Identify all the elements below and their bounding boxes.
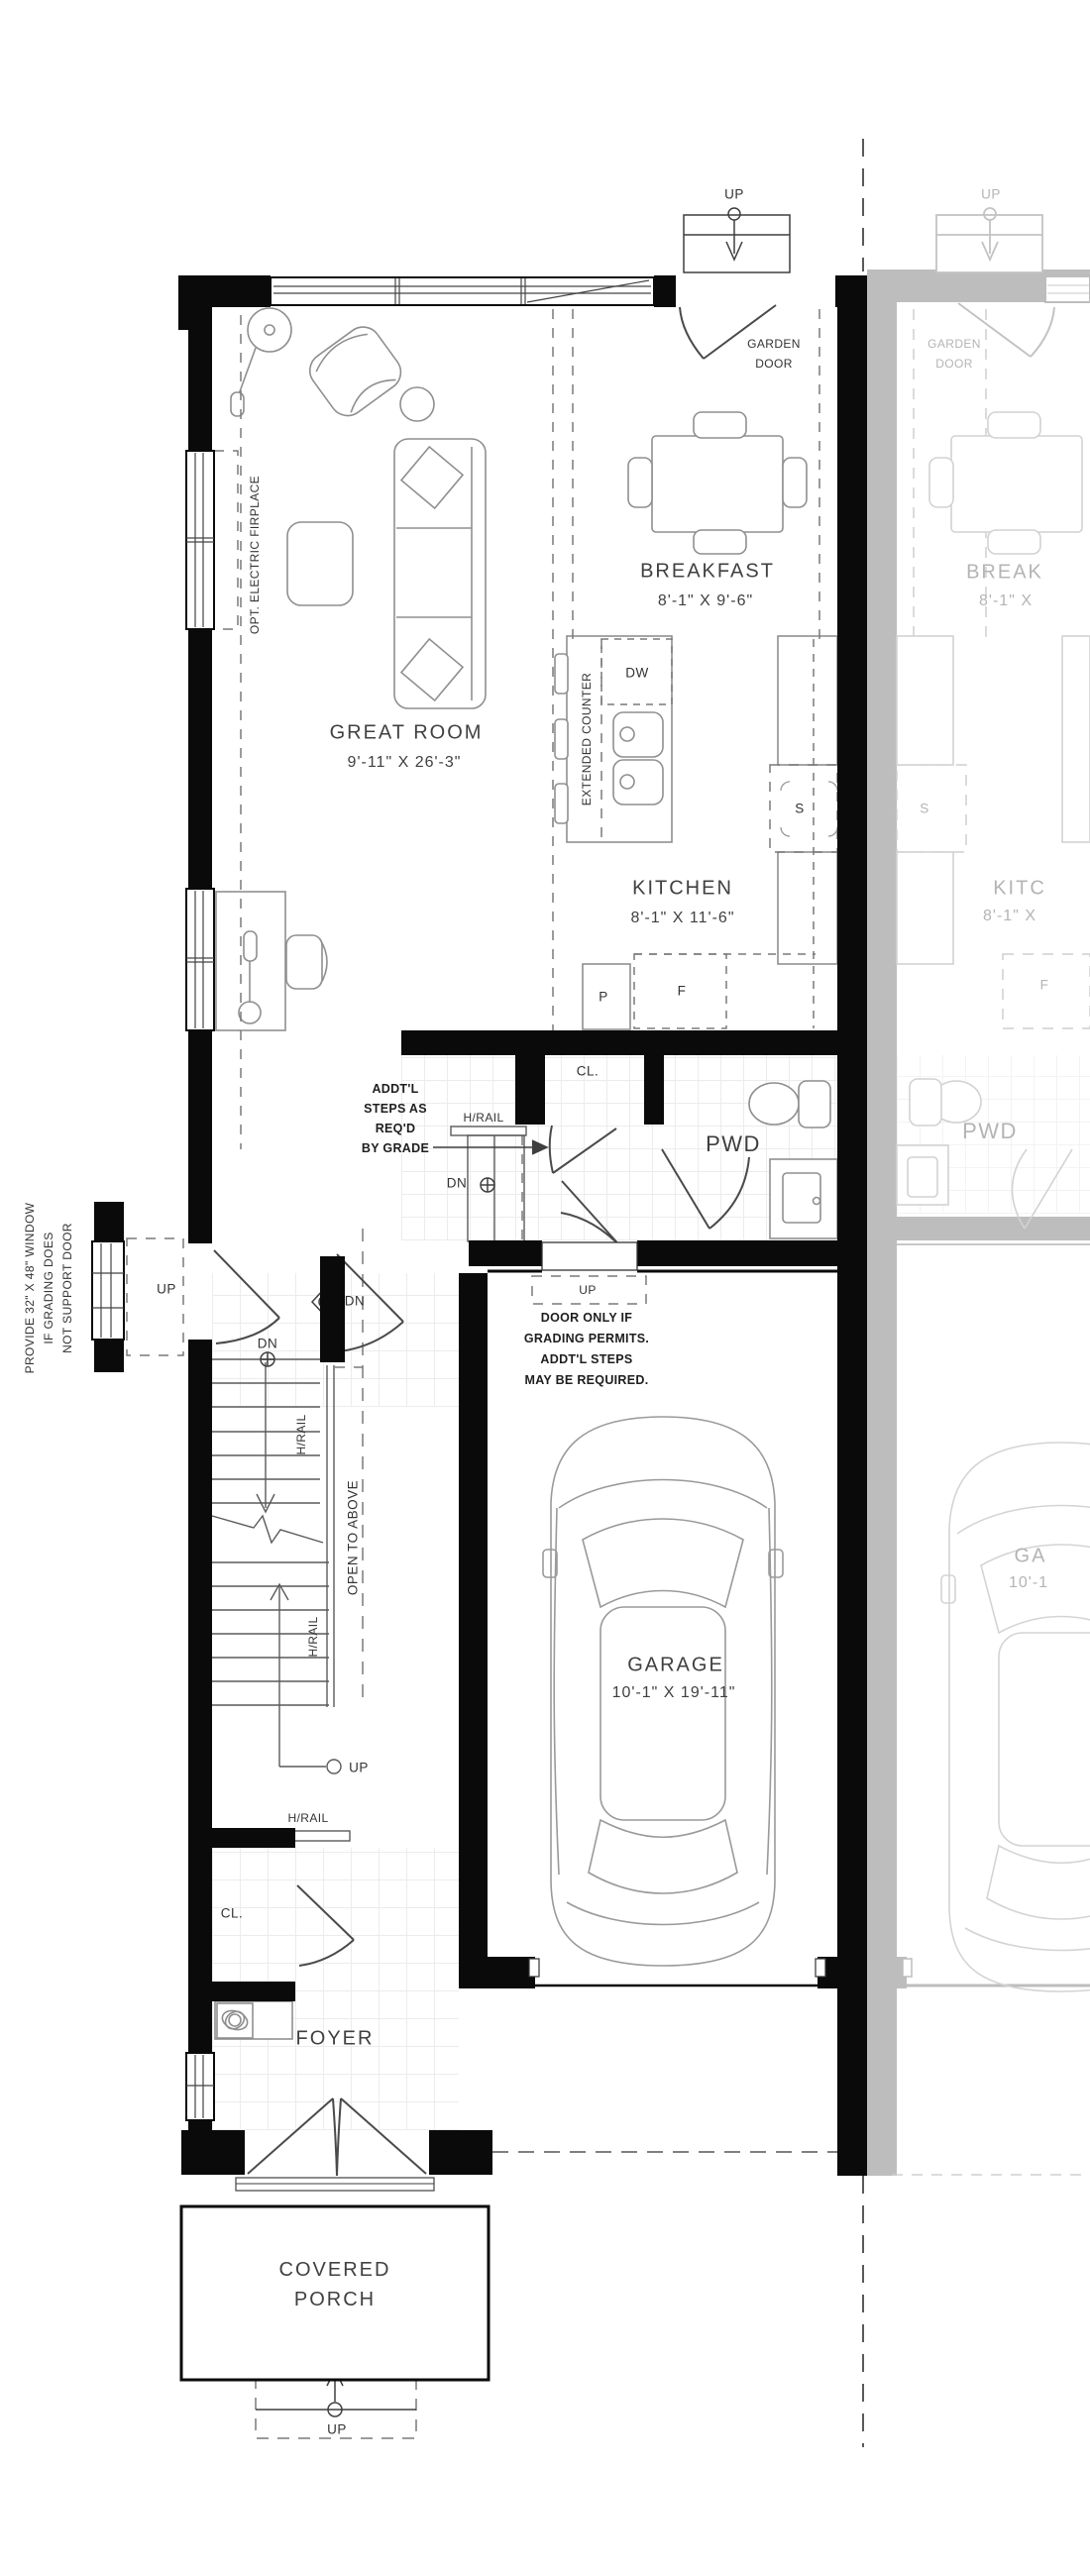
great-room-dims: 9'-11" X 26'-3" (348, 754, 462, 772)
optional-garage-door-opening (542, 1242, 637, 1270)
garage-dims: 10'-1" X 19'-11" (612, 1684, 736, 1702)
adjacent-powder-label: PWD (962, 1119, 1018, 1144)
adjacent-breakfast-label: BREAK (966, 562, 1043, 585)
adjacent-fridge-label: F (1040, 978, 1049, 993)
breakfast-label: BREAKFAST (640, 561, 775, 584)
door-grading-note-4: MAY BE REQUIRED. (525, 1373, 649, 1387)
adjacent-unit (867, 208, 1090, 2176)
window-grading-line1: PROVIDE 32" X 48" WINDOW (21, 1203, 40, 1374)
garden-door-label-1: GARDEN (747, 337, 801, 351)
hall-dn-label: DN (447, 1176, 468, 1191)
great-room-label: GREAT ROOM (330, 722, 484, 745)
adjacent-kitchen-label: KITC (993, 878, 1046, 901)
dashed-lines (127, 309, 860, 2438)
adjacent-s-label: S (920, 802, 929, 816)
garage-landing-up-label: UP (579, 1283, 596, 1297)
door-dn-label: DN (345, 1294, 366, 1309)
addtl-steps-note-3: REQ'D (376, 1122, 416, 1135)
adjacent-garden-door-2: DOOR (935, 357, 973, 371)
hrail-foyer-label: H/RAIL (287, 1811, 328, 1825)
side-entry-up-label: UP (157, 1282, 176, 1297)
window-grading-line2: IF GRADING DOES (40, 1203, 58, 1374)
opt-fireplace-note: OPT. ELECTRIC FIRPLACE (248, 476, 262, 634)
windows (92, 277, 654, 2120)
hrail-lower-label: H/RAIL (306, 1616, 320, 1657)
garage-door-jamb-right (816, 1959, 825, 1977)
covered-porch-label: COVERED PORCH (251, 2255, 419, 2314)
floor-plan: UP GARDEN DOOR BREAKFAST 8'-1" X 9'-6" G… (0, 0, 1090, 2576)
garage-label: GARAGE (627, 1655, 724, 1677)
garden-door-label-2: DOOR (755, 357, 793, 371)
hrail-upper-label: H/RAIL (294, 1414, 308, 1454)
addtl-steps-note-4: BY GRADE (362, 1141, 429, 1155)
kitchen-label: KITCHEN (632, 878, 733, 901)
stairs-dn-label: DN (258, 1337, 278, 1351)
window-mullions (92, 278, 651, 2118)
breakfast-dims: 8'-1" X 9'-6" (658, 592, 753, 610)
sink-s-label: S (795, 802, 805, 816)
addtl-steps-note-1: ADDT'L (372, 1082, 418, 1096)
kitchen-dims: 8'-1" X 11'-6" (631, 910, 735, 927)
foyer-label: FOYER (296, 2028, 375, 2051)
stoop-up-label: UP (724, 187, 744, 202)
addtl-steps-note-2: STEPS AS (364, 1102, 427, 1116)
adjacent-stoop-up-label: UP (981, 187, 1001, 202)
window-grading-note: PROVIDE 32" X 48" WINDOW IF GRADING DOES… (21, 1203, 78, 1374)
adjacent-garage-dims: 10'-1 (1009, 1574, 1048, 1592)
open-to-above-label: OPEN TO ABOVE (346, 1480, 361, 1595)
stairs-up-label: UP (349, 1761, 369, 1775)
wall-lines (181, 1271, 837, 2380)
foyer-closet-label: CL. (221, 1906, 244, 1921)
dishwasher-label: DW (625, 666, 649, 681)
pantry-label: P (599, 990, 608, 1005)
door-grading-note-1: DOOR ONLY IF (541, 1311, 633, 1325)
powder-room-label: PWD (706, 1131, 761, 1157)
porch-up-label: UP (327, 2422, 347, 2437)
door-grading-note-2: GRADING PERMITS. (524, 1332, 649, 1345)
window-grading-line3: NOT SUPPORT DOOR (59, 1203, 78, 1374)
hall-closet-label: CL. (577, 1064, 599, 1079)
hrail-landing-label: H/RAIL (463, 1111, 503, 1125)
garage-door-jamb-left (529, 1959, 539, 1977)
adjacent-garden-door-1: GARDEN (927, 337, 981, 351)
s-box-arcs (781, 782, 837, 836)
extended-counter-label: EXTENDED COUNTER (580, 673, 594, 805)
adjacent-breakfast-dims: 8'-1" X (979, 592, 1033, 610)
fridge-label: F (678, 984, 687, 999)
adjacent-garage-label: GA (1015, 1546, 1047, 1568)
adjacent-kitchen-dims: 8'-1" X (983, 908, 1036, 925)
door-grading-note-3: ADDT'L STEPS (540, 1352, 632, 1366)
